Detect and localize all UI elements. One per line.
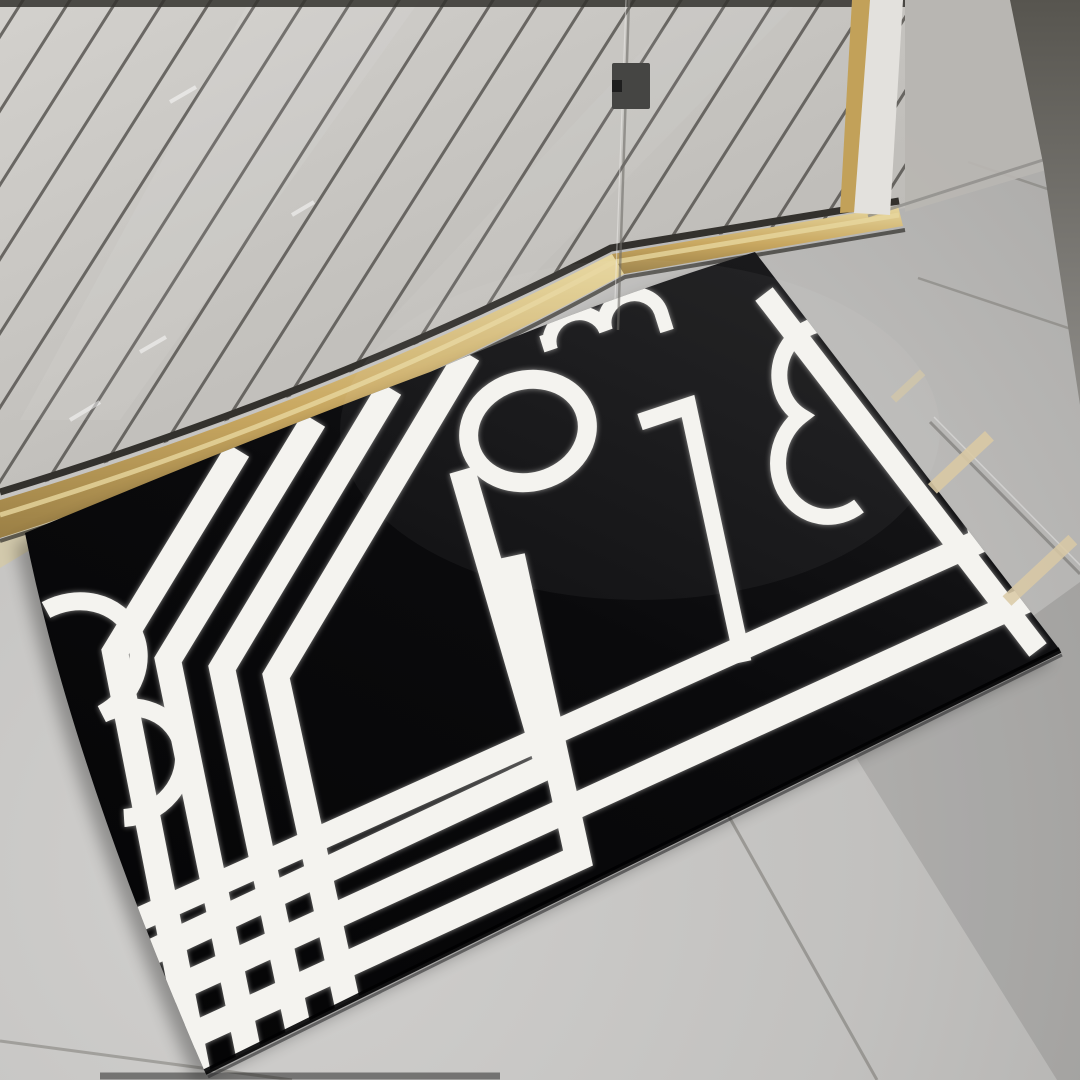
- slat-top-wall-line: [0, 0, 905, 7]
- photo-stage: [0, 0, 1080, 1080]
- bathroom-scene-photo: [0, 0, 1080, 1080]
- glass-hinge-notch: [612, 80, 622, 92]
